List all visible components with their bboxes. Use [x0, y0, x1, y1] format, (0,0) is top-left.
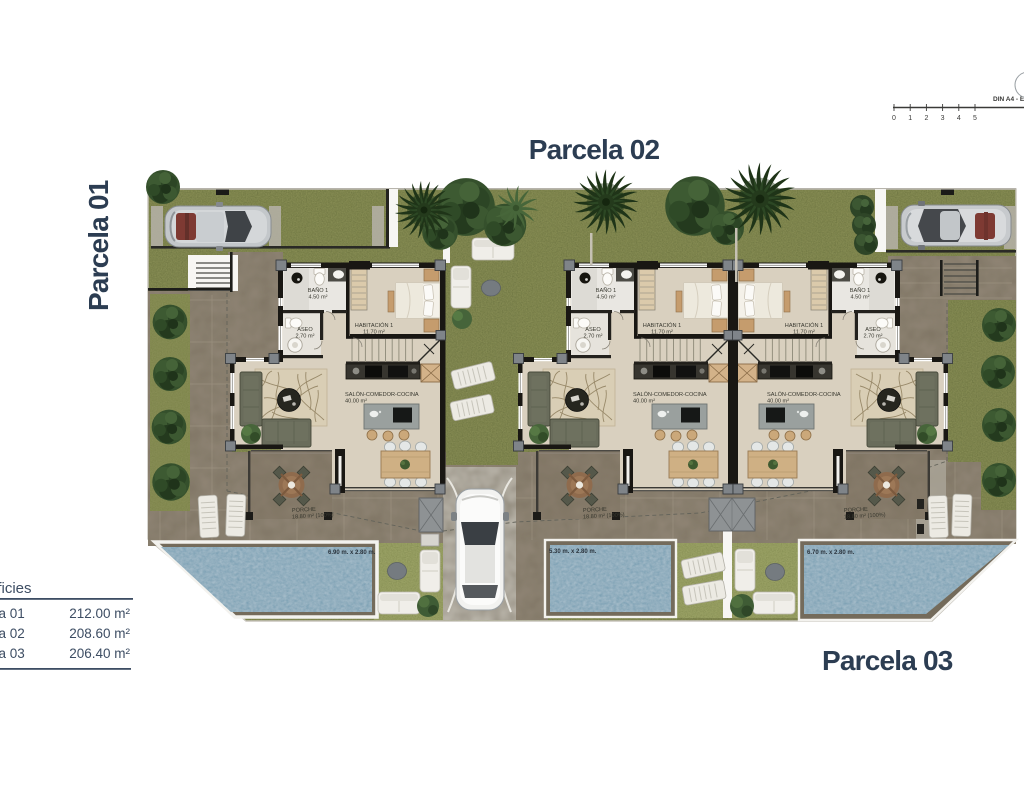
svg-text:4.50 m²: 4.50 m² [597, 295, 616, 301]
svg-text:4.50 m²: 4.50 m² [851, 295, 870, 301]
svg-text:BAÑO 1: BAÑO 1 [308, 287, 329, 294]
svg-text:0: 0 [892, 115, 896, 122]
svg-text:40.00 m²: 40.00 m² [633, 399, 655, 405]
svg-text:208.60 m²: 208.60 m² [69, 626, 130, 641]
svg-text:BAÑO 1: BAÑO 1 [596, 287, 617, 294]
svg-text:40.00 m²: 40.00 m² [345, 399, 367, 405]
svg-text:HABITACIÓN 1: HABITACIÓN 1 [785, 322, 823, 329]
svg-text:ela 02: ela 02 [0, 626, 25, 641]
svg-text:2: 2 [924, 115, 928, 122]
svg-text:ela 01: ela 01 [0, 606, 25, 621]
svg-text:Parcela 01: Parcela 01 [83, 180, 114, 311]
svg-text:206.40 m²: 206.40 m² [69, 646, 130, 661]
svg-text:11.70 m²: 11.70 m² [651, 330, 673, 336]
svg-text:BAÑO 1: BAÑO 1 [850, 287, 871, 294]
svg-text:ASEO: ASEO [585, 327, 601, 333]
svg-text:5.30 m. x 2.80 m.: 5.30 m. x 2.80 m. [549, 549, 597, 555]
svg-text:4: 4 [957, 115, 961, 122]
svg-text:Parcela 02: Parcela 02 [529, 134, 660, 165]
svg-text:ASEO: ASEO [297, 327, 313, 333]
svg-text:6.70 m. x 2.80 m.: 6.70 m. x 2.80 m. [807, 550, 855, 556]
svg-text:ASEO: ASEO [865, 327, 881, 333]
svg-text:DIN A4 - Es: DIN A4 - Es [993, 96, 1024, 103]
svg-text:Parcela 03: Parcela 03 [822, 645, 953, 676]
svg-text:5: 5 [973, 115, 977, 122]
svg-text:erficies: erficies [0, 580, 32, 597]
svg-text:SALÓN-COMEDOR-COCINA: SALÓN-COMEDOR-COCINA [633, 391, 707, 398]
svg-text:6.90 m. x 2.80 m.: 6.90 m. x 2.80 m. [328, 550, 376, 556]
svg-text:2.70 m²: 2.70 m² [296, 334, 315, 340]
svg-text:3: 3 [941, 115, 945, 122]
svg-text:2.70 m²: 2.70 m² [864, 334, 883, 340]
svg-text:ela 03: ela 03 [0, 646, 25, 661]
svg-text:HABITACIÓN 1: HABITACIÓN 1 [355, 322, 393, 329]
svg-text:11.70 m²: 11.70 m² [363, 330, 385, 336]
svg-text:40.00 m²: 40.00 m² [767, 399, 789, 405]
svg-text:11.70 m²: 11.70 m² [793, 330, 815, 336]
svg-text:1: 1 [908, 115, 912, 122]
svg-text:SALÓN-COMEDOR-COCINA: SALÓN-COMEDOR-COCINA [345, 391, 419, 398]
svg-text:2.70 m²: 2.70 m² [584, 334, 603, 340]
svg-text:212.00 m²: 212.00 m² [69, 606, 130, 621]
svg-text:SALÓN-COMEDOR-COCINA: SALÓN-COMEDOR-COCINA [767, 391, 841, 398]
svg-text:HABITACIÓN 1: HABITACIÓN 1 [643, 322, 681, 329]
svg-text:4.50 m²: 4.50 m² [309, 295, 328, 301]
